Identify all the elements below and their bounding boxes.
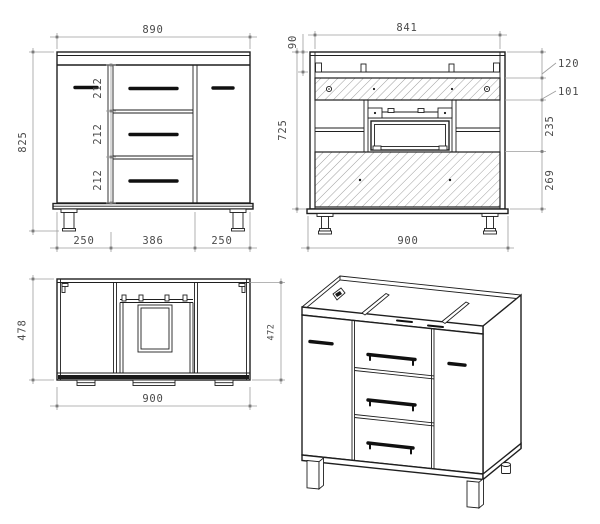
front-cabinet-outline xyxy=(53,52,253,231)
iso-back-right-foot xyxy=(502,463,511,474)
clip-3 xyxy=(449,64,454,72)
leader-101 xyxy=(542,91,556,99)
dim-label-900-plan: 900 xyxy=(142,393,163,405)
corner-bracket-left xyxy=(62,284,68,293)
iso-front-left-leg xyxy=(307,458,324,489)
dim-plan-width-overall: 900 xyxy=(50,387,257,410)
front-view: 890 825 xyxy=(17,24,257,252)
dim-label-825: 825 xyxy=(17,131,29,152)
iso-left-door-handle xyxy=(310,342,332,344)
dim-label-269: 269 xyxy=(544,169,556,190)
iso-back-panel-edge xyxy=(340,276,521,299)
rear-lower-panel xyxy=(315,152,500,207)
front-right-leg xyxy=(230,209,246,231)
iso-front-face xyxy=(302,315,483,474)
dim-depth-overall: 478 xyxy=(17,275,55,384)
dim-label-120: 120 xyxy=(558,58,579,70)
plan-front-edge xyxy=(58,375,249,379)
dim-depth-inner: 472 xyxy=(249,279,285,385)
rear-view: 841 90 725 xyxy=(277,22,579,252)
front-left-leg xyxy=(61,209,77,231)
top-view: 478 472 900 xyxy=(17,275,286,410)
dim-bottom-segments: 250 386 250 xyxy=(50,212,257,252)
dim-label-900-rear: 900 xyxy=(397,235,418,247)
dim-label-478: 478 xyxy=(17,319,29,340)
dim-rear-width-overall: 900 xyxy=(301,216,514,252)
iso-right-door-handle xyxy=(449,364,465,366)
rear-base-strip xyxy=(307,209,508,214)
iso-divider-2 xyxy=(442,302,469,324)
sink-module xyxy=(120,295,193,373)
rear-upper-panel xyxy=(315,78,500,100)
dim-label-386: 386 xyxy=(142,235,163,247)
dim-label-725: 725 xyxy=(277,119,289,140)
dim-width-inner-top: 841 xyxy=(308,22,507,49)
leader-120 xyxy=(542,63,556,74)
clip-4 xyxy=(494,63,500,72)
iso-front-right-leg xyxy=(467,479,484,509)
dim-label-90: 90 xyxy=(287,35,299,49)
dim-label-250r: 250 xyxy=(211,235,232,247)
dim-width-top: 890 xyxy=(50,24,257,49)
drawer-back-box xyxy=(371,121,449,150)
sink-cutout-outer xyxy=(138,305,172,352)
dim-label-250l: 250 xyxy=(73,235,94,247)
dim-label-212a: 212 xyxy=(92,77,104,98)
technical-drawing-canvas: 890 825 xyxy=(0,0,600,524)
dim-label-890: 890 xyxy=(142,24,163,36)
dim-rear-right-stack: 120 101 235 269 xyxy=(505,48,579,213)
dim-label-841: 841 xyxy=(396,22,417,34)
dim-label-212c: 212 xyxy=(92,169,104,190)
clip-2 xyxy=(361,64,366,72)
clip-1 xyxy=(316,63,322,72)
rear-right-leg xyxy=(482,214,498,235)
iso-view xyxy=(302,276,521,508)
corner-bracket-right xyxy=(239,284,245,293)
dim-drawer-heights: 212 212 212 xyxy=(92,64,116,205)
rear-cabinet-outline xyxy=(307,52,508,234)
iso-divider-1 xyxy=(362,294,389,316)
dim-label-472: 472 xyxy=(267,324,277,341)
dim-top-rail: 90 xyxy=(287,34,308,76)
dim-label-101: 101 xyxy=(558,86,579,98)
technical-drawing-page: 890 825 xyxy=(0,0,600,524)
iso-bracket xyxy=(333,288,345,300)
dim-label-235: 235 xyxy=(544,115,556,136)
dim-label-212b: 212 xyxy=(92,123,104,144)
drawer-slide-assembly xyxy=(368,108,452,118)
rear-left-leg xyxy=(317,214,333,235)
plan-outline xyxy=(57,279,250,386)
